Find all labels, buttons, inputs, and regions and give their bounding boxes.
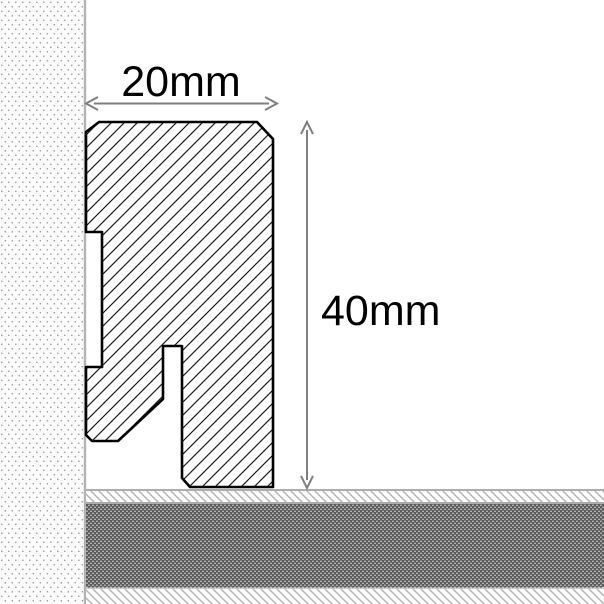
wall-surface — [0, 0, 84, 604]
diagram-stage: 20mm 40mm — [0, 0, 604, 604]
floor-bottom-strip — [86, 589, 604, 604]
floor-screed-layer — [86, 504, 604, 588]
skirting-board-diagram: 20mm 40mm — [0, 0, 604, 604]
floor-assembly — [86, 490, 604, 604]
width-dimension-label: 20mm — [121, 58, 240, 106]
height-dimension: 40mm — [301, 122, 440, 488]
height-dimension-label: 40mm — [321, 287, 440, 335]
skirting-profile-cross-section — [86, 122, 273, 487]
floor-covering-strip — [86, 491, 604, 503]
width-dimension: 20mm — [86, 58, 277, 110]
